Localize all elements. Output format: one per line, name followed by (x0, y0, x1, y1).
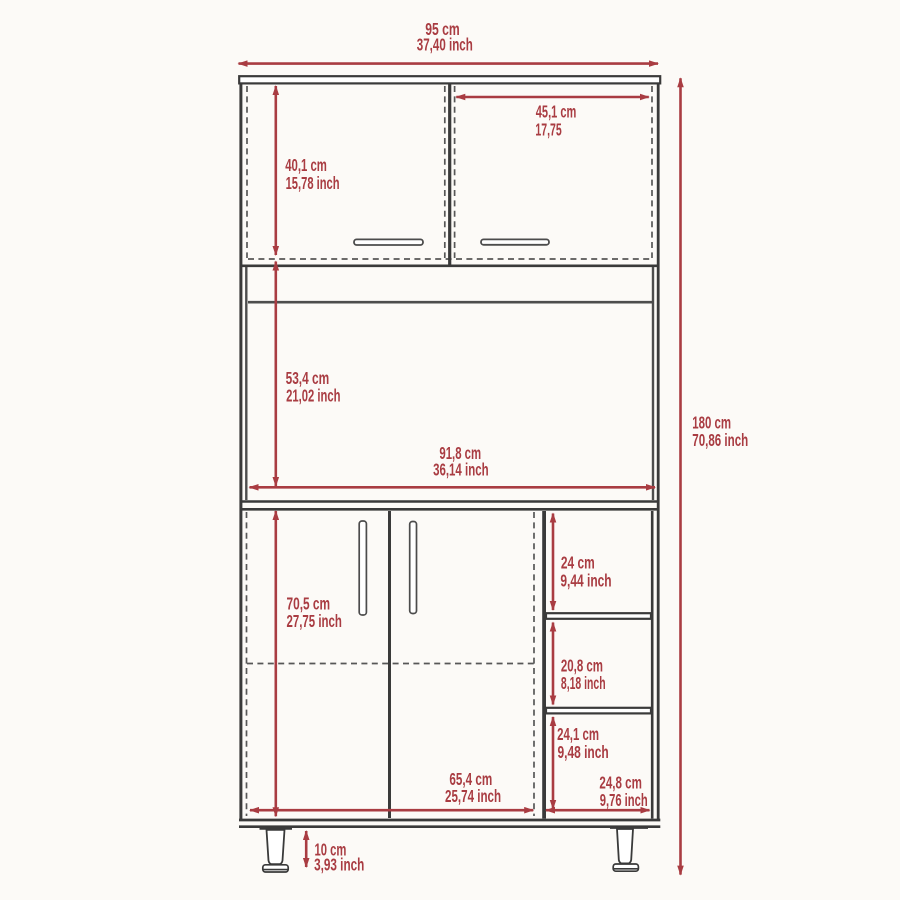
svg-text:15,78 inch: 15,78 inch (286, 173, 340, 193)
svg-text:25,74 inch: 25,74 inch (445, 786, 501, 806)
svg-text:21,02 inch: 21,02 inch (286, 386, 340, 406)
svg-text:8,18 inch: 8,18 inch (561, 673, 606, 693)
svg-text:24,1 cm: 24,1 cm (557, 724, 599, 744)
svg-text:36,14 inch: 36,14 inch (433, 460, 489, 480)
svg-text:9,44 inch: 9,44 inch (560, 571, 611, 591)
svg-text:17,75: 17,75 (535, 120, 561, 140)
svg-text:45,1 cm: 45,1 cm (536, 102, 577, 122)
svg-text:3,93 inch: 3,93 inch (314, 855, 364, 875)
svg-text:24 cm: 24 cm (561, 553, 595, 573)
svg-text:70,86 inch: 70,86 inch (692, 430, 748, 450)
svg-text:9,76 inch: 9,76 inch (600, 790, 648, 810)
svg-text:40,1 cm: 40,1 cm (285, 155, 327, 175)
svg-text:27,75 inch: 27,75 inch (287, 611, 342, 631)
svg-text:9,48 inch: 9,48 inch (558, 742, 609, 762)
svg-text:37,40 inch: 37,40 inch (417, 35, 473, 55)
